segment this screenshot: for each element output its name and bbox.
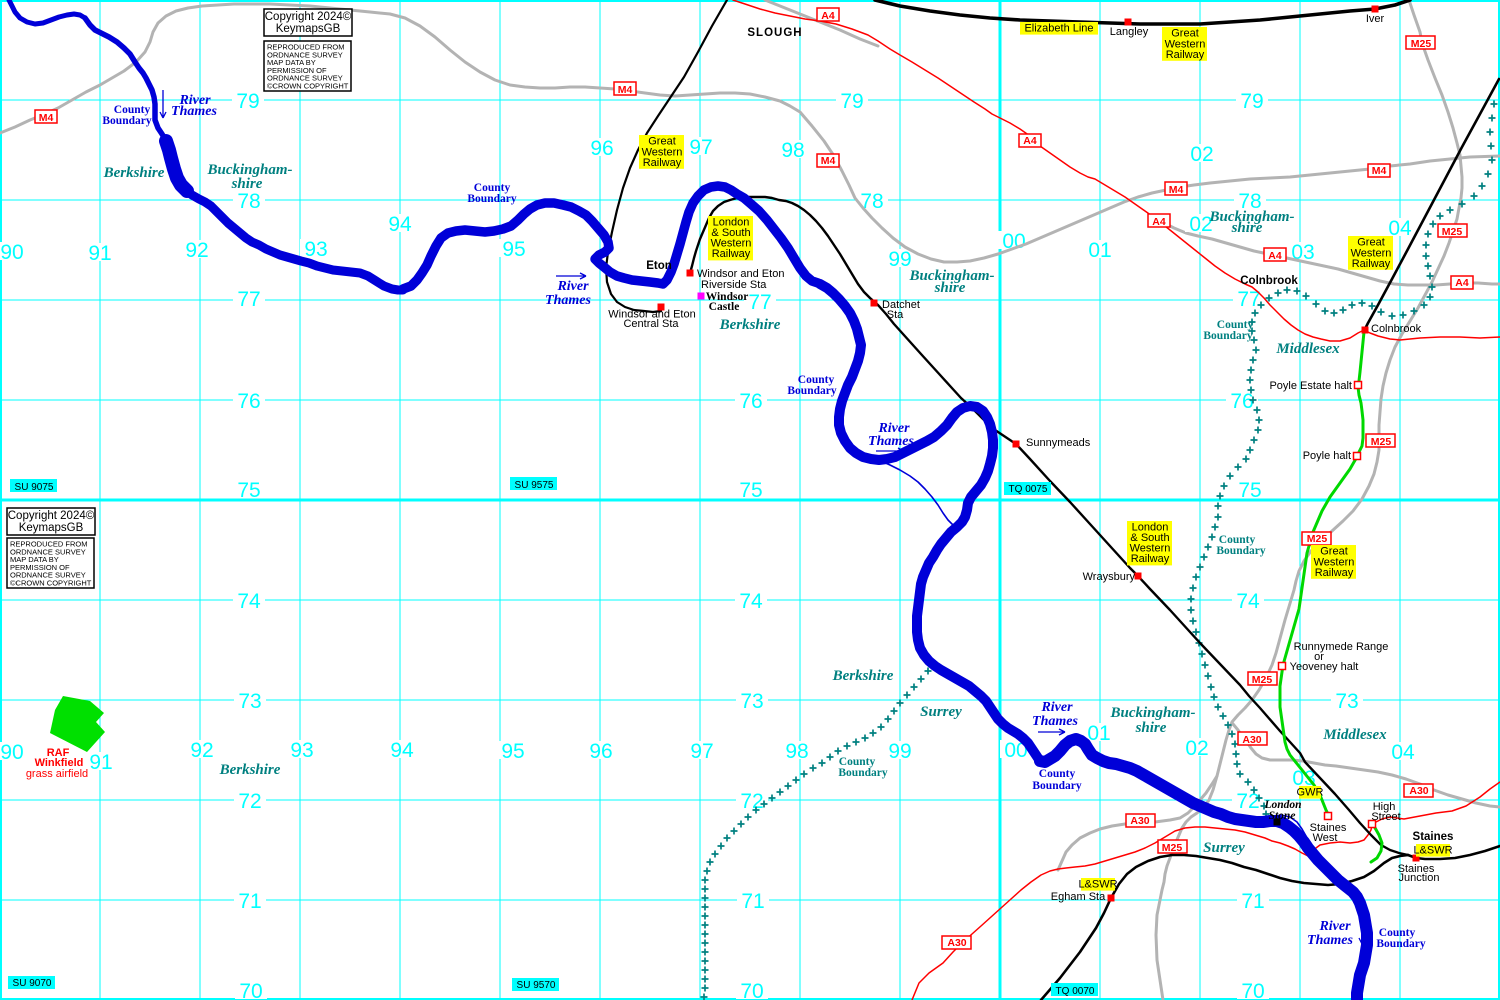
svg-text:93: 93 <box>304 238 327 261</box>
svg-text:Boundary: Boundary <box>102 115 151 127</box>
svg-text:A30: A30 <box>1130 815 1149 827</box>
svg-text:shire: shire <box>231 176 263 192</box>
svg-text:04: 04 <box>1391 741 1415 764</box>
svg-text:99: 99 <box>888 248 911 271</box>
svg-text:73: 73 <box>1335 690 1358 713</box>
svg-text:M25: M25 <box>1411 38 1432 50</box>
svg-text:County: County <box>1039 768 1076 780</box>
svg-text:97: 97 <box>689 136 712 159</box>
svg-text:72: 72 <box>1236 790 1259 813</box>
svg-text:01: 01 <box>1087 722 1110 745</box>
svg-text:75: 75 <box>1238 479 1261 502</box>
svg-text:76: 76 <box>237 390 260 413</box>
svg-text:M4: M4 <box>39 112 54 124</box>
svg-text:A4: A4 <box>1268 250 1282 262</box>
svg-text:A4: A4 <box>1152 216 1166 228</box>
svg-text:River: River <box>556 279 589 294</box>
svg-text:Riverside Sta: Riverside Sta <box>701 279 767 291</box>
svg-text:Railway: Railway <box>1352 258 1391 270</box>
svg-text:72: 72 <box>740 790 763 813</box>
svg-text:98: 98 <box>785 740 808 763</box>
svg-text:75: 75 <box>237 479 260 502</box>
svg-text:95: 95 <box>501 740 524 763</box>
svg-text:A30: A30 <box>1409 785 1428 797</box>
svg-text:Boundary: Boundary <box>1216 545 1265 557</box>
svg-text:M25: M25 <box>1371 436 1392 448</box>
svg-text:70: 70 <box>239 980 262 1000</box>
svg-text:Wraysbury: Wraysbury <box>1083 571 1136 583</box>
svg-text:M25: M25 <box>1442 226 1463 238</box>
svg-text:79: 79 <box>840 90 863 113</box>
svg-text:Berkshire: Berkshire <box>103 165 165 181</box>
svg-text:Sta: Sta <box>887 309 904 321</box>
svg-text:77: 77 <box>237 288 260 311</box>
svg-text:Berkshire: Berkshire <box>719 317 781 333</box>
svg-text:M25: M25 <box>1162 842 1183 854</box>
svg-text:A4: A4 <box>1023 135 1037 147</box>
svg-text:Egham Sta: Egham Sta <box>1051 891 1106 903</box>
svg-text:M4: M4 <box>618 84 633 96</box>
svg-text:©CROWN COPYRIGHT: ©CROWN COPYRIGHT <box>10 579 92 588</box>
svg-text:96: 96 <box>590 137 613 160</box>
svg-text:Iver: Iver <box>1366 13 1385 25</box>
svg-text:79: 79 <box>236 90 259 113</box>
svg-text:78: 78 <box>237 190 260 213</box>
svg-text:98: 98 <box>781 139 804 162</box>
svg-text:74: 74 <box>1236 590 1260 613</box>
svg-text:TQ 0070: TQ 0070 <box>1056 986 1095 997</box>
svg-text:Boundary: Boundary <box>467 193 516 205</box>
svg-text:River: River <box>1040 700 1073 715</box>
svg-text:Street: Street <box>1371 811 1400 823</box>
svg-text:70: 70 <box>740 980 763 1000</box>
svg-text:West: West <box>1313 832 1338 844</box>
svg-text:Thames: Thames <box>1032 714 1078 729</box>
svg-text:91: 91 <box>88 242 111 265</box>
svg-text:75: 75 <box>739 479 762 502</box>
svg-text:Railway: Railway <box>1131 553 1170 565</box>
svg-text:Railway: Railway <box>1166 49 1205 61</box>
svg-text:Runnymede Range: Runnymede Range <box>1294 641 1389 653</box>
svg-text:Buckingham-: Buckingham- <box>1109 705 1195 721</box>
svg-text:02: 02 <box>1185 737 1208 760</box>
svg-text:Colnbrook: Colnbrook <box>1240 275 1298 287</box>
svg-text:Yeoveney halt: Yeoveney halt <box>1290 661 1359 673</box>
svg-text:Thames: Thames <box>868 434 914 449</box>
svg-text:77: 77 <box>748 291 771 314</box>
svg-text:Railway: Railway <box>643 157 682 169</box>
svg-text:grass airfield: grass airfield <box>26 768 88 780</box>
svg-text:72: 72 <box>238 790 261 813</box>
svg-text:A4: A4 <box>821 10 835 22</box>
svg-text:Railway: Railway <box>712 248 751 260</box>
svg-text:Thames: Thames <box>1307 933 1353 948</box>
svg-text:GWR: GWR <box>1297 786 1324 798</box>
svg-text:Eton: Eton <box>646 260 672 272</box>
svg-text:Langley: Langley <box>1110 26 1149 38</box>
svg-text:Surrey: Surrey <box>920 704 962 720</box>
svg-text:Railway: Railway <box>1315 567 1354 579</box>
svg-text:97: 97 <box>690 740 713 763</box>
svg-text:SLOUGH: SLOUGH <box>747 27 802 39</box>
svg-text:91: 91 <box>89 751 112 774</box>
svg-text:Elizabeth Line: Elizabeth Line <box>1024 22 1093 34</box>
svg-text:©CROWN COPYRIGHT: ©CROWN COPYRIGHT <box>267 82 349 91</box>
svg-text:71: 71 <box>238 890 261 913</box>
svg-text:TQ 0075: TQ 0075 <box>1009 484 1048 495</box>
svg-text:02: 02 <box>1190 143 1213 166</box>
svg-text:A4: A4 <box>1455 277 1469 289</box>
svg-text:Poyle Estate halt: Poyle Estate halt <box>1269 380 1352 392</box>
svg-text:Poyle halt: Poyle halt <box>1303 450 1351 462</box>
svg-text:SU 9570: SU 9570 <box>517 980 556 991</box>
svg-text:Thames: Thames <box>545 293 591 308</box>
svg-text:90: 90 <box>0 741 23 764</box>
svg-text:Central Sta: Central Sta <box>623 318 679 330</box>
svg-text:Berkshire: Berkshire <box>832 668 894 684</box>
svg-text:M25: M25 <box>1252 674 1273 686</box>
svg-text:Boundary: Boundary <box>838 767 887 779</box>
svg-text:92: 92 <box>190 739 213 762</box>
svg-text:SU 9075: SU 9075 <box>15 482 54 493</box>
svg-text:01: 01 <box>1088 239 1111 262</box>
svg-text:Stone: Stone <box>1269 810 1296 822</box>
svg-text:96: 96 <box>589 740 612 763</box>
svg-text:KeymapsGB: KeymapsGB <box>276 23 341 35</box>
svg-text:Junction: Junction <box>1399 872 1440 884</box>
svg-text:Boundary: Boundary <box>1376 938 1425 950</box>
svg-text:Boundary: Boundary <box>787 385 836 397</box>
svg-text:SU 9070: SU 9070 <box>13 978 52 989</box>
svg-text:94: 94 <box>390 739 414 762</box>
svg-text:Staines: Staines <box>1413 831 1454 843</box>
svg-text:M4: M4 <box>1169 184 1184 196</box>
svg-text:79: 79 <box>1240 90 1263 113</box>
svg-text:Berkshire: Berkshire <box>219 762 281 778</box>
svg-text:shire: shire <box>934 280 966 296</box>
svg-text:Sunnymeads: Sunnymeads <box>1026 437 1091 449</box>
svg-text:93: 93 <box>290 739 313 762</box>
svg-text:Thames: Thames <box>171 104 217 119</box>
svg-text:73: 73 <box>238 690 261 713</box>
svg-text:M25: M25 <box>1307 533 1328 545</box>
svg-text:73: 73 <box>740 690 763 713</box>
svg-text:Copyright 2024©: Copyright 2024© <box>265 11 352 23</box>
svg-text:76: 76 <box>739 390 762 413</box>
svg-text:74: 74 <box>739 590 763 613</box>
svg-text:Copyright 2024©: Copyright 2024© <box>8 510 95 522</box>
svg-text:Colnbrook: Colnbrook <box>1371 323 1422 335</box>
svg-text:River: River <box>1318 919 1351 934</box>
svg-text:71: 71 <box>1241 890 1264 913</box>
svg-text:SU 9575: SU 9575 <box>515 480 554 491</box>
svg-text:shire: shire <box>1135 720 1167 736</box>
svg-text:90: 90 <box>0 241 23 264</box>
svg-text:M4: M4 <box>821 155 836 167</box>
svg-text:Middlesex: Middlesex <box>1275 341 1340 357</box>
svg-text:70: 70 <box>1241 980 1264 1000</box>
svg-text:95: 95 <box>502 238 525 261</box>
svg-text:99: 99 <box>888 740 911 763</box>
svg-text:Surrey: Surrey <box>1203 840 1245 856</box>
svg-text:L&SWR: L&SWR <box>1413 844 1452 856</box>
svg-text:Castle: Castle <box>709 301 740 313</box>
svg-text:A30: A30 <box>947 937 966 949</box>
svg-text:74: 74 <box>237 590 261 613</box>
svg-text:KeymapsGB: KeymapsGB <box>19 522 84 534</box>
svg-text:92: 92 <box>185 239 208 262</box>
svg-text:M4: M4 <box>1372 165 1387 177</box>
svg-text:71: 71 <box>741 890 764 913</box>
svg-text:Middlesex: Middlesex <box>1322 727 1387 743</box>
svg-text:Boundary: Boundary <box>1032 780 1081 792</box>
svg-text:Boundary: Boundary <box>1203 330 1252 342</box>
svg-text:94: 94 <box>388 213 412 236</box>
svg-text:shire: shire <box>1231 220 1263 236</box>
svg-text:A30: A30 <box>1242 734 1261 746</box>
svg-text:L&SWR: L&SWR <box>1078 878 1117 890</box>
